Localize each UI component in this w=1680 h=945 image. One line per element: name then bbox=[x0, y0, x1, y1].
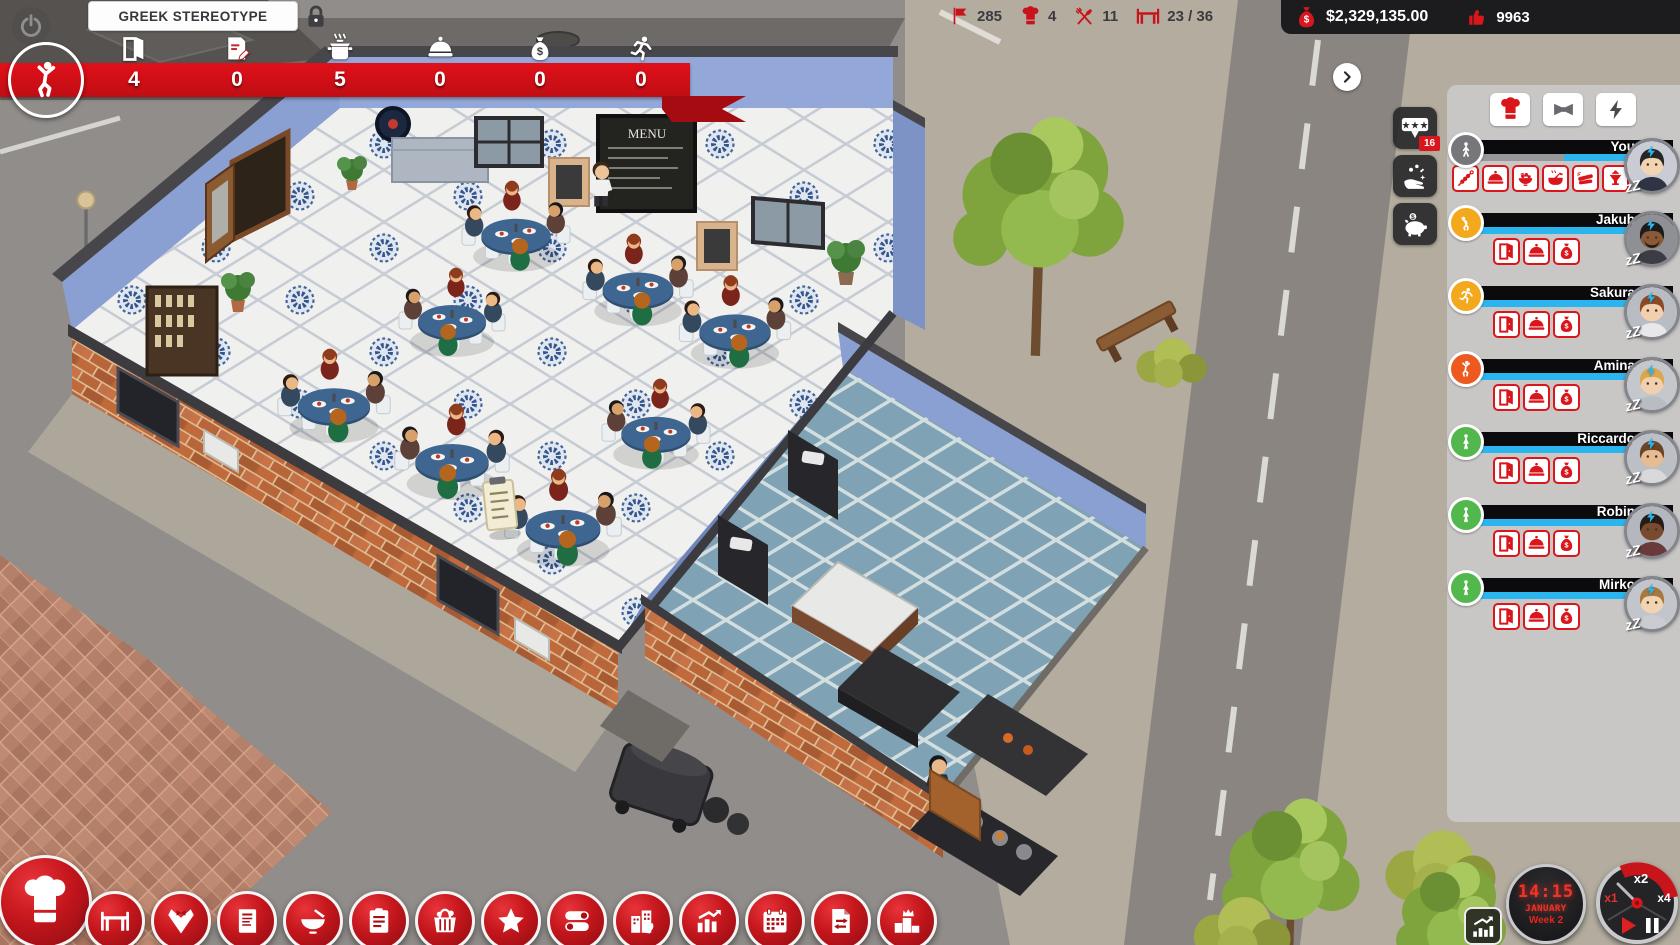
cloche-icon bbox=[1482, 165, 1509, 192]
lock-icon[interactable] bbox=[303, 3, 329, 31]
skill-chips bbox=[1493, 311, 1580, 338]
market-basket-icon bbox=[430, 906, 460, 936]
skill-chips bbox=[1493, 238, 1580, 265]
cloche-icon bbox=[1523, 384, 1550, 411]
stat-reputation: 285 bbox=[950, 6, 1002, 26]
flag-icon bbox=[950, 6, 970, 26]
door-icon bbox=[1493, 603, 1520, 630]
skill-chips bbox=[1493, 530, 1580, 557]
tab-energy[interactable] bbox=[1596, 93, 1636, 126]
stat-dishes-ready: 0 bbox=[395, 32, 485, 95]
lightning-icon bbox=[1605, 98, 1628, 121]
staff-row-riccardo[interactable]: Riccardo zZ bbox=[1447, 432, 1680, 498]
door-icon bbox=[89, 32, 179, 63]
chef-hat-icon bbox=[18, 875, 72, 929]
power-button[interactable] bbox=[12, 7, 50, 45]
door-icon bbox=[1493, 457, 1520, 484]
restaurant-name-input[interactable]: GREEK STEREOTYPE bbox=[88, 1, 298, 31]
utensils-icon bbox=[1074, 6, 1095, 27]
cooking-pot-icon bbox=[295, 32, 385, 63]
staff-row-amina[interactable]: Amina zZ bbox=[1447, 359, 1680, 425]
bow-tie-icon bbox=[1551, 97, 1576, 122]
staff-row-sakura[interactable]: Sakura zZ bbox=[1447, 286, 1680, 352]
cloche-icon bbox=[1523, 238, 1550, 265]
toolbar-furniture-button[interactable] bbox=[85, 891, 145, 945]
energy-bolt-icon bbox=[1644, 436, 1659, 451]
finances-chart-icon bbox=[694, 906, 724, 936]
contracts-document-icon bbox=[826, 906, 856, 936]
chef-hat-icon bbox=[1020, 6, 1041, 27]
stat-customers-leaving: 0 bbox=[596, 32, 686, 95]
piggy-bank-icon bbox=[1401, 210, 1429, 238]
settings-toggles-icon bbox=[562, 906, 592, 936]
door-icon bbox=[1493, 238, 1520, 265]
waiter-vest-icon bbox=[166, 906, 196, 936]
money-bag-icon bbox=[1553, 384, 1580, 411]
staff-row-robin[interactable]: Robin zZ bbox=[1447, 505, 1680, 571]
kebab-skewer-icon bbox=[1452, 165, 1479, 192]
energy-bolt-icon bbox=[1644, 217, 1659, 232]
skill-chips bbox=[1452, 165, 1629, 192]
toolbar-chef-button[interactable] bbox=[0, 855, 92, 945]
growth-chart-icon bbox=[1470, 913, 1496, 939]
toolbar-ranking-button[interactable] bbox=[877, 891, 937, 945]
cloche-icon bbox=[1523, 457, 1550, 484]
stat-customers-entering: 4 bbox=[89, 32, 179, 95]
standing-person-icon bbox=[1448, 424, 1484, 460]
month-display: JANUARY bbox=[1525, 904, 1566, 914]
cash-amount: $2,329,135.00 bbox=[1326, 8, 1428, 26]
tasks-clipboard-icon bbox=[364, 906, 394, 936]
money-bag-icon bbox=[495, 32, 585, 63]
time-display: 14:15 bbox=[1518, 882, 1574, 902]
reviews-badge: 16 bbox=[1419, 136, 1440, 151]
svg-text:MENU: MENU bbox=[628, 126, 667, 141]
door-icon bbox=[1493, 384, 1520, 411]
stat-tables-occupancy: 23 / 36 bbox=[1136, 4, 1213, 28]
toolbar-restaurants-button[interactable] bbox=[613, 891, 673, 945]
running-person-icon bbox=[596, 32, 686, 63]
stat-orders-taken: 0 bbox=[192, 32, 282, 95]
cloche-icon bbox=[395, 32, 485, 63]
stat-dishes-cooking: 5 bbox=[295, 32, 385, 95]
restaurants-buildings-icon bbox=[628, 906, 658, 936]
soup-icon bbox=[1542, 165, 1569, 192]
order-pad-icon bbox=[192, 32, 282, 63]
calendar-icon bbox=[760, 906, 790, 936]
toolbar-menu-button[interactable] bbox=[217, 891, 277, 945]
speed-x4-label: x4 bbox=[1657, 891, 1671, 905]
thumbs-up-icon bbox=[1466, 6, 1488, 28]
finance-bar: $2,329,135.00 9963 bbox=[1281, 0, 1680, 34]
running-person-icon bbox=[1448, 278, 1484, 314]
reviews-star-icon bbox=[496, 906, 526, 936]
money-bag-icon bbox=[1553, 457, 1580, 484]
recipes-bowl-icon bbox=[298, 906, 328, 936]
standing-person-icon bbox=[1448, 570, 1484, 606]
week-display: Week 2 bbox=[1529, 915, 1563, 926]
energy-bolt-icon bbox=[1644, 582, 1659, 597]
tab-waiters[interactable] bbox=[1543, 93, 1583, 126]
cloche-icon bbox=[1523, 603, 1550, 630]
staff-row-you[interactable]: You zZ bbox=[1447, 140, 1680, 206]
speed-dial: x2 x1 x4 bbox=[1596, 862, 1678, 944]
sausage-icon bbox=[1572, 165, 1599, 192]
toolbar-contracts-button[interactable] bbox=[811, 891, 871, 945]
bending-person-icon bbox=[1448, 205, 1484, 241]
speed-x2-label: x2 bbox=[1634, 871, 1648, 886]
stat-bills-pending: 0 bbox=[495, 32, 585, 95]
energy-bolt-icon bbox=[1644, 363, 1659, 378]
money-bag-icon bbox=[1553, 530, 1580, 557]
ingredients-notification-button[interactable] bbox=[1393, 155, 1437, 197]
door-icon bbox=[1493, 530, 1520, 557]
customer-mood-button[interactable] bbox=[8, 42, 84, 118]
toolbar-staff-button[interactable] bbox=[151, 891, 211, 945]
toolbar-calendar-button[interactable] bbox=[745, 891, 805, 945]
energy-bolt-icon bbox=[1644, 509, 1659, 524]
game-clock: 14:15 JANUARY Week 2 bbox=[1506, 864, 1586, 944]
game-screen: MENU GREEK STEREOTYPE bbox=[0, 0, 1680, 945]
energy-bolt-icon bbox=[1644, 290, 1659, 305]
cloche-icon bbox=[1523, 530, 1550, 557]
likes-count: 9963 bbox=[1496, 9, 1529, 26]
cloche-icon bbox=[1523, 311, 1550, 338]
speed-x1-label: x1 bbox=[1604, 891, 1618, 905]
stat-chefs: 4 bbox=[1020, 6, 1056, 27]
chevron-right-icon bbox=[1339, 69, 1355, 85]
standing-person-icon bbox=[1448, 497, 1484, 533]
hand-food-icon bbox=[1401, 162, 1429, 190]
energy-bolt-icon bbox=[1644, 144, 1659, 159]
tab-chefs[interactable] bbox=[1490, 93, 1530, 126]
toolbar-tasks-button[interactable] bbox=[349, 891, 409, 945]
skill-chips bbox=[1493, 603, 1580, 630]
door-icon bbox=[1493, 311, 1520, 338]
skill-chips bbox=[1493, 384, 1580, 411]
money-bag-icon bbox=[1294, 5, 1319, 30]
dancing-person-icon bbox=[1448, 351, 1484, 387]
salad-bowl-icon bbox=[1512, 165, 1539, 192]
restaurant-stats: 285 4 11 23 / 36 bbox=[950, 4, 1213, 28]
sleeping-indicator: zZ bbox=[1624, 177, 1643, 196]
savings-notification-button[interactable] bbox=[1393, 203, 1437, 245]
toolbar-finances-button[interactable] bbox=[679, 891, 739, 945]
stat-waiters: 11 bbox=[1074, 6, 1118, 27]
dining-table-icon bbox=[100, 906, 130, 936]
money-bag-icon bbox=[1553, 603, 1580, 630]
tables-icon bbox=[1136, 4, 1160, 28]
ranking-podium-icon bbox=[892, 906, 922, 936]
panel-collapse-button[interactable] bbox=[1333, 63, 1361, 91]
staff-row-mirko[interactable]: Mirko zZ bbox=[1447, 578, 1680, 644]
skill-chips bbox=[1493, 457, 1580, 484]
chef-hat-icon bbox=[1498, 97, 1523, 122]
toolbar-market-button[interactable] bbox=[415, 891, 475, 945]
growth-report-button[interactable] bbox=[1464, 907, 1502, 945]
restaurant-name: GREEK STEREOTYPE bbox=[119, 9, 268, 24]
walking-person-icon bbox=[1448, 132, 1484, 168]
money-bag-icon bbox=[1553, 311, 1580, 338]
menu-book-icon bbox=[232, 906, 262, 936]
staff-panel: You zZ Jakub zZ Sakura bbox=[1447, 85, 1680, 822]
banner-ribbon-tail bbox=[662, 96, 748, 122]
toolbar-reviews-button[interactable] bbox=[481, 891, 541, 945]
money-bag-icon bbox=[1553, 238, 1580, 265]
toolbar-recipes-button[interactable] bbox=[283, 891, 343, 945]
staff-row-jakub[interactable]: Jakub zZ bbox=[1447, 213, 1680, 279]
menu-blackboard: MENU bbox=[598, 116, 695, 211]
toolbar-settings-button[interactable] bbox=[547, 891, 607, 945]
